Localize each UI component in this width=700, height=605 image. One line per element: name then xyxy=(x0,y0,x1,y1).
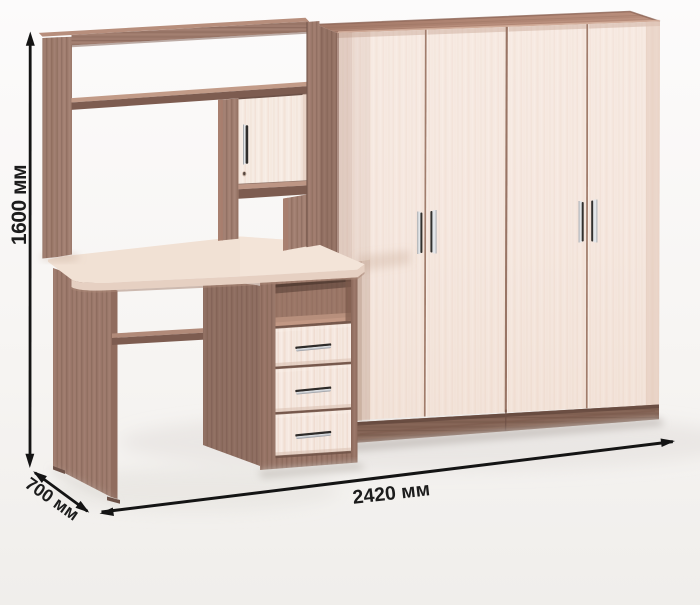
svg-text:1600 мм: 1600 мм xyxy=(8,165,31,245)
